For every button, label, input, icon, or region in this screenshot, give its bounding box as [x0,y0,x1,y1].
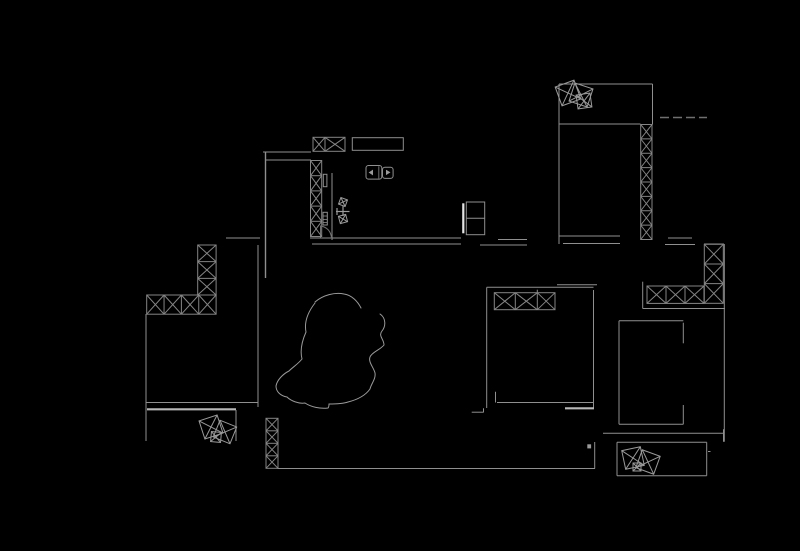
kitchen-fixture-small-1 [323,174,327,186]
markers-layer [462,203,591,448]
cad-floor-plan [0,0,800,551]
walls-layer [146,84,725,476]
window-bedroom [494,293,555,310]
floor-plan-canvas [0,0,800,551]
furniture-symbols-layer [199,80,660,474]
rotated-square [339,198,348,207]
door-arc-kitchen [321,226,332,238]
column-kitchen [311,161,322,237]
sink-fixture-top [339,198,348,207]
appliance-right-knob [387,171,390,175]
fridge-highlight-bar [462,203,464,233]
column-right [704,244,723,303]
window-left [147,295,216,314]
window-kitchen-top [313,137,345,151]
appliance-left-knob [370,171,373,175]
cloud-top [315,293,361,308]
kitchen-fixture-small-2 [323,212,327,225]
annotation-paths-layer [276,171,390,409]
hatch-outline [313,137,345,151]
hatched-walls-layer [147,125,724,469]
decor-squares-entry [199,415,237,444]
wall-strip-right [647,286,704,303]
appliance-left [366,166,382,180]
cloud-left [276,303,329,408]
range-hood-cabinet [352,138,403,151]
column-left [198,245,216,295]
small-gray-dot [587,444,591,448]
cloud-right [329,314,385,404]
decor-squares-bottom-right [622,447,660,474]
square-diagonal [339,198,348,207]
column-bottom-left [266,418,278,468]
column-top-right [641,125,652,240]
